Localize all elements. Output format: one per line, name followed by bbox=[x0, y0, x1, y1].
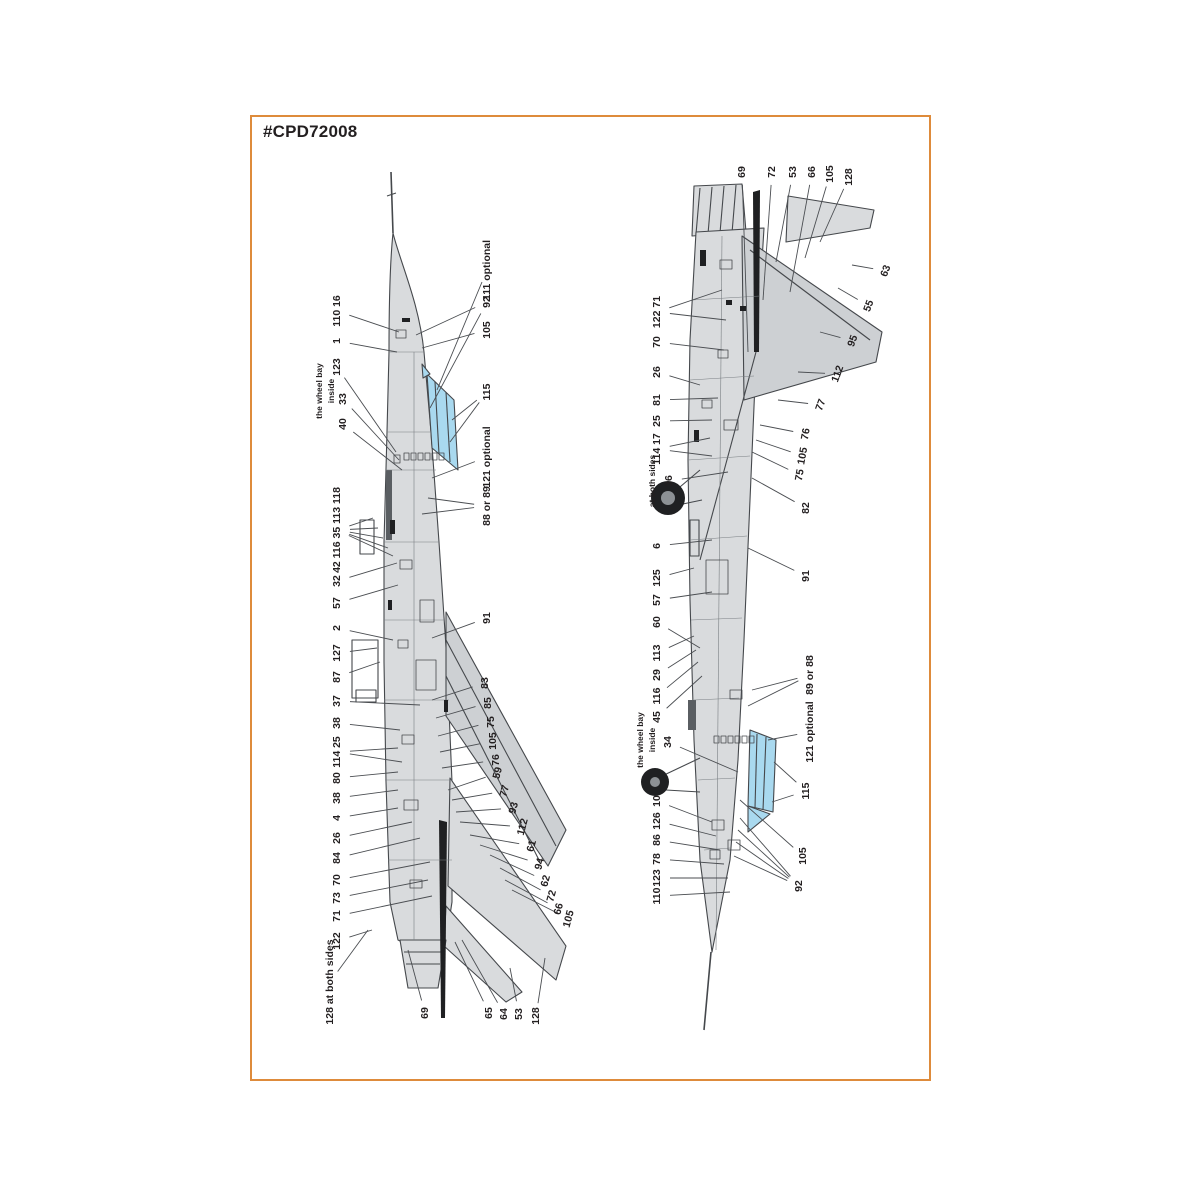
leader-line bbox=[350, 748, 398, 751]
leader-line bbox=[350, 754, 402, 762]
leader-line bbox=[852, 265, 873, 269]
leader-line bbox=[772, 795, 794, 802]
leader-line bbox=[838, 288, 858, 299]
leader-line bbox=[756, 440, 791, 452]
leader-line bbox=[432, 622, 475, 638]
leader-line bbox=[805, 186, 826, 258]
leader-line bbox=[344, 378, 396, 452]
leader-line bbox=[349, 315, 399, 332]
leader-line bbox=[820, 332, 840, 338]
leader-line bbox=[500, 868, 541, 890]
leader-line bbox=[350, 724, 400, 730]
leader-line bbox=[408, 950, 422, 1000]
leader-line bbox=[670, 892, 730, 895]
leader-lines-layer bbox=[0, 0, 1200, 1200]
leader-line bbox=[669, 376, 700, 385]
leader-line bbox=[437, 282, 482, 390]
leader-line bbox=[350, 532, 383, 538]
leader-line bbox=[752, 478, 795, 502]
leader-line bbox=[350, 343, 397, 352]
leader-line bbox=[740, 800, 793, 847]
leader-line bbox=[538, 958, 545, 1003]
leader-line bbox=[349, 534, 388, 548]
leader-line bbox=[440, 744, 480, 752]
leader-line bbox=[760, 425, 793, 432]
leader-line bbox=[432, 687, 473, 700]
leader-line bbox=[438, 725, 478, 736]
leader-line bbox=[670, 313, 726, 320]
leader-line bbox=[350, 528, 378, 529]
leader-line bbox=[670, 824, 716, 836]
leader-line bbox=[670, 344, 724, 350]
leader-line bbox=[742, 185, 748, 352]
leader-line bbox=[349, 563, 397, 577]
leader-line bbox=[682, 472, 728, 479]
leader-line bbox=[352, 409, 399, 460]
leader-line bbox=[670, 568, 694, 575]
leader-line bbox=[436, 707, 476, 718]
leader-line bbox=[456, 809, 501, 812]
leader-line bbox=[349, 518, 373, 526]
leader-line bbox=[350, 631, 393, 640]
leader-line bbox=[670, 398, 718, 400]
leader-line bbox=[667, 676, 702, 708]
leader-line bbox=[350, 822, 412, 835]
leader-line bbox=[452, 793, 492, 800]
leader-line bbox=[470, 835, 519, 844]
leader-line bbox=[350, 862, 430, 878]
leader-line bbox=[669, 806, 712, 822]
leader-line bbox=[353, 432, 402, 470]
leader-line bbox=[512, 890, 557, 913]
leader-line bbox=[670, 860, 724, 864]
leader-line bbox=[670, 420, 712, 421]
leader-line bbox=[448, 777, 486, 790]
leader-line bbox=[350, 790, 398, 796]
leader-line bbox=[670, 540, 712, 545]
leader-line bbox=[668, 629, 700, 648]
leader-line bbox=[490, 855, 534, 876]
leader-line bbox=[670, 451, 712, 456]
leader-line bbox=[510, 968, 517, 1001]
leader-line bbox=[776, 185, 791, 262]
leader-line bbox=[748, 548, 794, 570]
leader-line bbox=[349, 535, 393, 556]
leader-line bbox=[350, 702, 420, 705]
leader-line bbox=[350, 880, 428, 895]
leader-line bbox=[670, 842, 720, 850]
leader-line bbox=[763, 185, 771, 300]
leader-line bbox=[349, 930, 372, 937]
leader-line bbox=[349, 585, 398, 599]
leader-line bbox=[480, 845, 528, 860]
leader-line bbox=[450, 402, 479, 442]
leader-line bbox=[350, 772, 398, 777]
leader-line bbox=[778, 400, 808, 403]
leader-line bbox=[669, 290, 722, 308]
leader-line bbox=[349, 662, 380, 673]
leader-line bbox=[670, 438, 710, 446]
leader-line bbox=[798, 372, 825, 373]
leader-line bbox=[430, 313, 481, 408]
leader-line bbox=[668, 650, 696, 668]
leader-line bbox=[350, 808, 398, 816]
leader-line bbox=[350, 648, 377, 651]
leader-line bbox=[752, 678, 797, 690]
leader-line bbox=[350, 896, 432, 913]
leader-line bbox=[442, 762, 483, 768]
leader-line bbox=[416, 307, 475, 335]
leader-line bbox=[752, 452, 788, 469]
leader-line bbox=[455, 942, 483, 1001]
leader-line bbox=[422, 508, 474, 514]
leader-line bbox=[768, 734, 797, 740]
leader-line bbox=[680, 747, 738, 772]
leader-line bbox=[790, 185, 810, 292]
leader-line bbox=[428, 498, 474, 504]
leader-line bbox=[432, 462, 475, 478]
leader-line bbox=[350, 838, 420, 855]
leader-line bbox=[740, 818, 790, 876]
leader-line bbox=[670, 592, 712, 598]
leader-line bbox=[460, 822, 510, 826]
leader-line bbox=[505, 880, 548, 903]
leader-line bbox=[774, 762, 796, 782]
